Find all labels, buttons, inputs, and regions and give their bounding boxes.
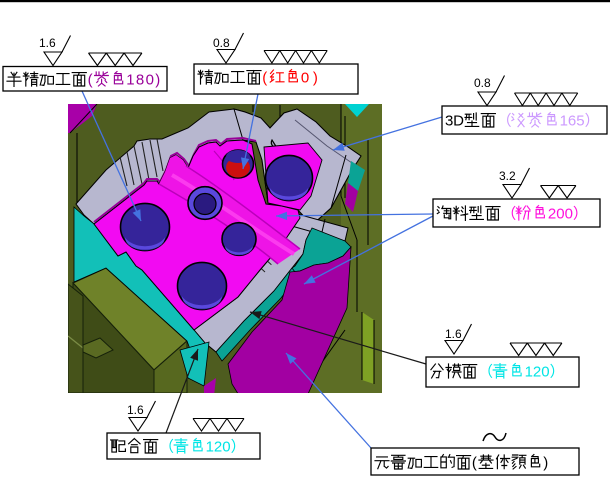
svg-text:(: (	[262, 69, 267, 86]
svg-text:1.6: 1.6	[127, 403, 144, 417]
svg-text:（: （	[159, 438, 174, 455]
svg-text:0.8: 0.8	[213, 36, 230, 50]
svg-text:3D: 3D	[445, 112, 464, 129]
svg-text:1.6: 1.6	[39, 36, 56, 50]
svg-text:3.2: 3.2	[499, 169, 516, 183]
svg-text:200）: 200）	[548, 205, 588, 222]
svg-text:): )	[543, 454, 548, 471]
svg-text:（: （	[497, 112, 512, 129]
svg-text:（: （	[478, 363, 493, 380]
svg-text:（: （	[501, 205, 516, 222]
svg-text:180): 180)	[126, 71, 160, 88]
svg-text:1.6: 1.6	[445, 327, 462, 341]
svg-text:120）: 120）	[525, 363, 565, 380]
svg-text:0.8: 0.8	[474, 76, 491, 90]
svg-text:(: (	[88, 71, 93, 88]
svg-text:165）: 165）	[560, 112, 600, 129]
svg-text:120）: 120）	[206, 438, 246, 455]
svg-text:(: (	[472, 454, 477, 471]
